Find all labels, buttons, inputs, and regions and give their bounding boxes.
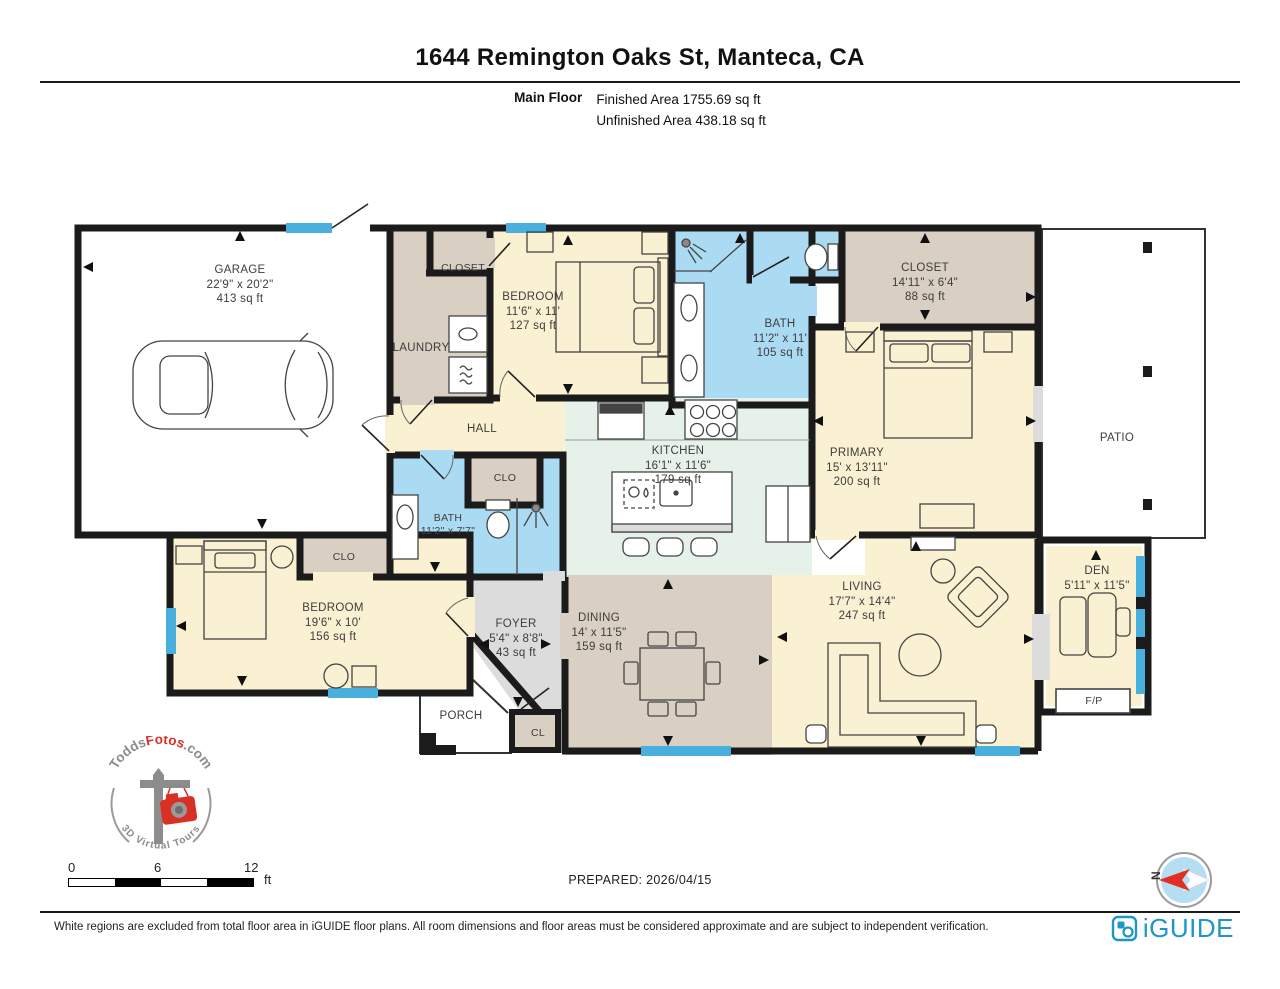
room-label-living: LIVING17'7" x 14'4"247 sq ft xyxy=(829,580,896,624)
porch-steps xyxy=(420,733,456,755)
room-label-clo-mid: CLO xyxy=(494,472,517,485)
toddsfotos-logo: ToddsFotos.com 3D Virtual Tours xyxy=(100,736,222,862)
floor-plan-page: 1644 Remington Oaks St, Manteca, CA Main… xyxy=(0,0,1280,989)
room-label-foyer: FOYER5'4" x 8'8"43 sq ft xyxy=(489,617,543,661)
iguide-logo: iGUIDE xyxy=(1111,913,1234,944)
footer-divider xyxy=(40,911,1240,913)
car-icon xyxy=(133,333,333,437)
room-label-patio: PATIO xyxy=(1100,431,1134,446)
toddsfotos-brand: ToddsFotos.com xyxy=(106,736,215,771)
room-label-laundry: LAUNDRY xyxy=(393,341,450,356)
iguide-icon xyxy=(1111,915,1138,942)
room-label-closet-primary: CLOSET14'11" x 6'4"88 sq ft xyxy=(892,261,958,305)
room-label-kitchen: KITCHEN16'1" x 11'6"179 sq ft xyxy=(645,444,711,488)
room-label-porch: PORCH xyxy=(439,709,482,724)
room-label-hall: HALL xyxy=(467,422,497,437)
room-label-dining: DINING14' x 11'5"159 sq ft xyxy=(571,611,626,655)
prepared-date: PREPARED: 2026/04/15 xyxy=(0,873,1280,887)
room-label-clo-left: CLO xyxy=(333,551,356,564)
room-label-closet-top: CLOSET xyxy=(441,262,485,275)
room-label-den: DEN5'11" x 11'5" xyxy=(1064,564,1129,593)
room-label-cl: CL xyxy=(531,727,545,740)
compass-north-label: N xyxy=(1149,871,1163,880)
room-label-bedroom-top: BEDROOM11'6" x 11'127 sq ft xyxy=(502,290,564,334)
compass-icon: N xyxy=(1146,842,1222,918)
room-label-fireplace: F/P xyxy=(1085,695,1102,708)
room-label-bedroom-left: BEDROOM19'6" x 10'156 sq ft xyxy=(302,601,364,645)
room-label-primary: PRIMARY15' x 13'11"200 sq ft xyxy=(826,446,888,490)
room-label-bath-mid: BATH11'2" x 7'7" xyxy=(421,512,476,539)
room-label-garage: GARAGE22'9" x 20'2"413 sq ft xyxy=(207,263,274,307)
iguide-wordmark: iGUIDE xyxy=(1143,913,1234,944)
camera-icon xyxy=(159,788,198,825)
room-label-bath-top: BATH11'2" x 11'105 sq ft xyxy=(753,317,807,361)
footer-disclaimer: White regions are excluded from total fl… xyxy=(54,921,989,933)
